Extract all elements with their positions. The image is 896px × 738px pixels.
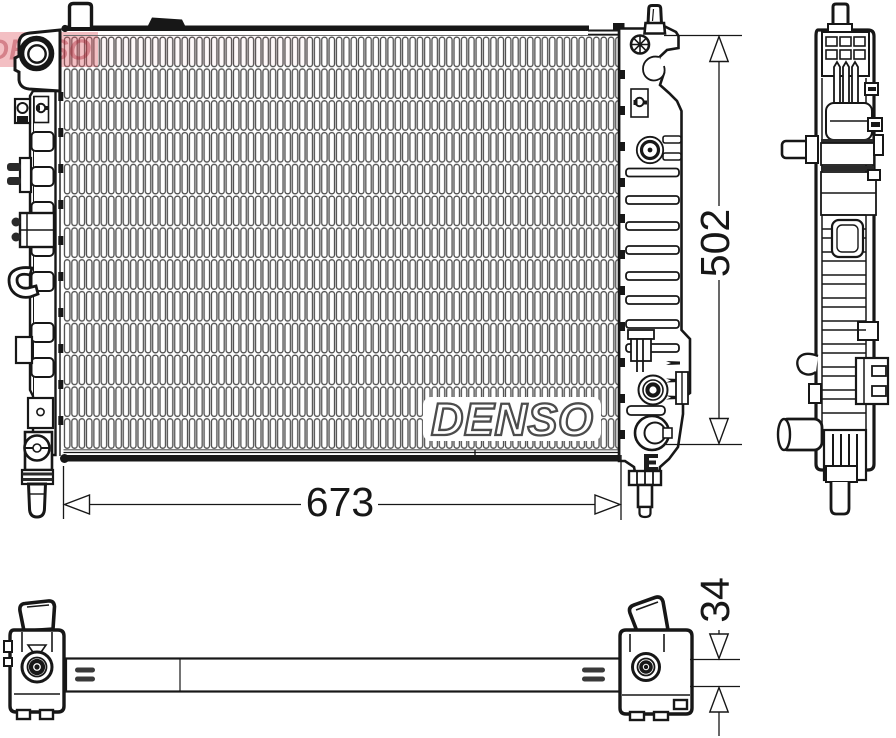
svg-text:DENSO: DENSO	[431, 394, 594, 445]
svg-text:502: 502	[692, 209, 738, 277]
svg-text:673: 673	[306, 479, 374, 525]
svg-text:34: 34	[692, 577, 738, 623]
